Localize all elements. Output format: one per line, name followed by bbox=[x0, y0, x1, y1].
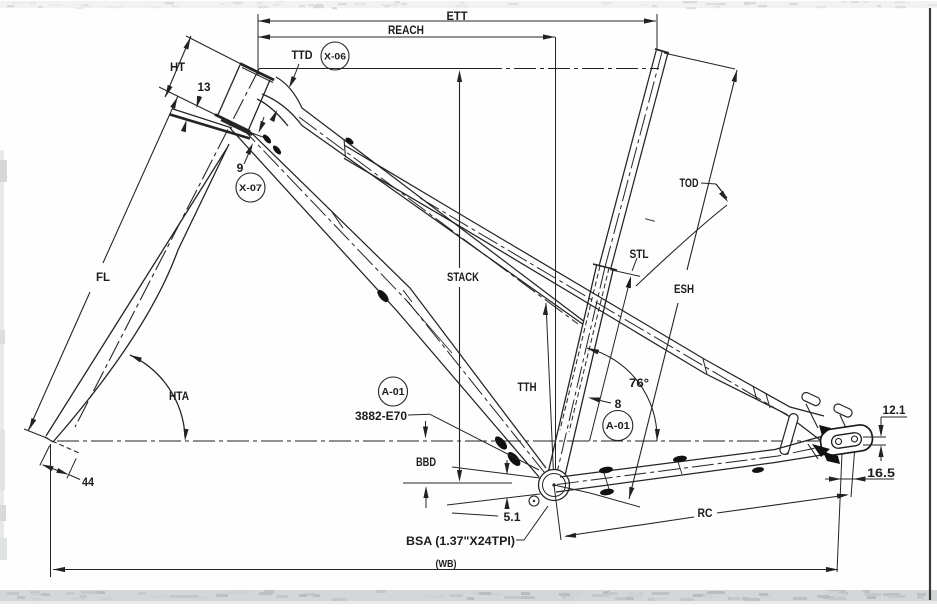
svg-text:REACH: REACH bbox=[388, 23, 424, 37]
svg-text:STL: STL bbox=[630, 247, 649, 261]
svg-text:A-01: A-01 bbox=[382, 386, 405, 398]
svg-text:5.1: 5.1 bbox=[504, 510, 521, 524]
svg-text:ESH: ESH bbox=[674, 282, 694, 296]
svg-text:(WB): (WB) bbox=[436, 559, 457, 570]
svg-text:RC: RC bbox=[698, 506, 713, 520]
svg-text:TTD: TTD bbox=[292, 48, 313, 62]
svg-text:BSA (1.37"X24TPI): BSA (1.37"X24TPI) bbox=[406, 534, 515, 548]
svg-text:HTA: HTA bbox=[169, 389, 189, 403]
svg-text:76°: 76° bbox=[629, 376, 649, 390]
svg-text:X-07: X-07 bbox=[239, 183, 262, 194]
svg-text:A-01: A-01 bbox=[606, 420, 630, 432]
svg-text:8: 8 bbox=[615, 397, 622, 411]
svg-text:STACK: STACK bbox=[447, 270, 479, 284]
svg-text:FL: FL bbox=[96, 270, 110, 284]
svg-text:TTH: TTH bbox=[518, 380, 537, 394]
svg-text:X-06: X-06 bbox=[324, 52, 346, 63]
svg-text:12.1: 12.1 bbox=[883, 403, 906, 417]
svg-text:ETT: ETT bbox=[447, 9, 469, 23]
svg-text:44: 44 bbox=[82, 475, 94, 489]
svg-text:13: 13 bbox=[198, 80, 211, 94]
svg-text:3882-E70: 3882-E70 bbox=[355, 409, 407, 423]
svg-text:HT: HT bbox=[170, 60, 186, 74]
svg-text:9: 9 bbox=[237, 161, 244, 175]
svg-text:16.5: 16.5 bbox=[867, 466, 895, 480]
svg-text:TOD: TOD bbox=[680, 176, 699, 190]
svg-text:BBD: BBD bbox=[416, 455, 436, 469]
